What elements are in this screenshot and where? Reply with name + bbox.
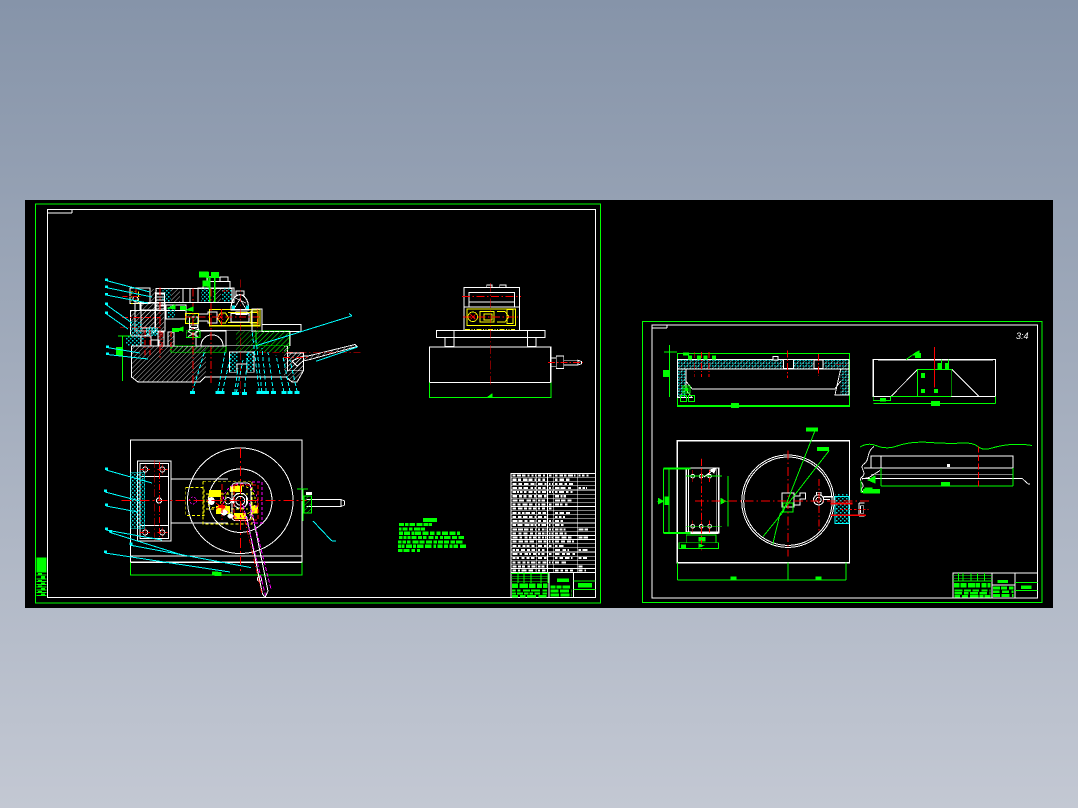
svg-text:3:4: 3:4 bbox=[1016, 331, 1029, 341]
